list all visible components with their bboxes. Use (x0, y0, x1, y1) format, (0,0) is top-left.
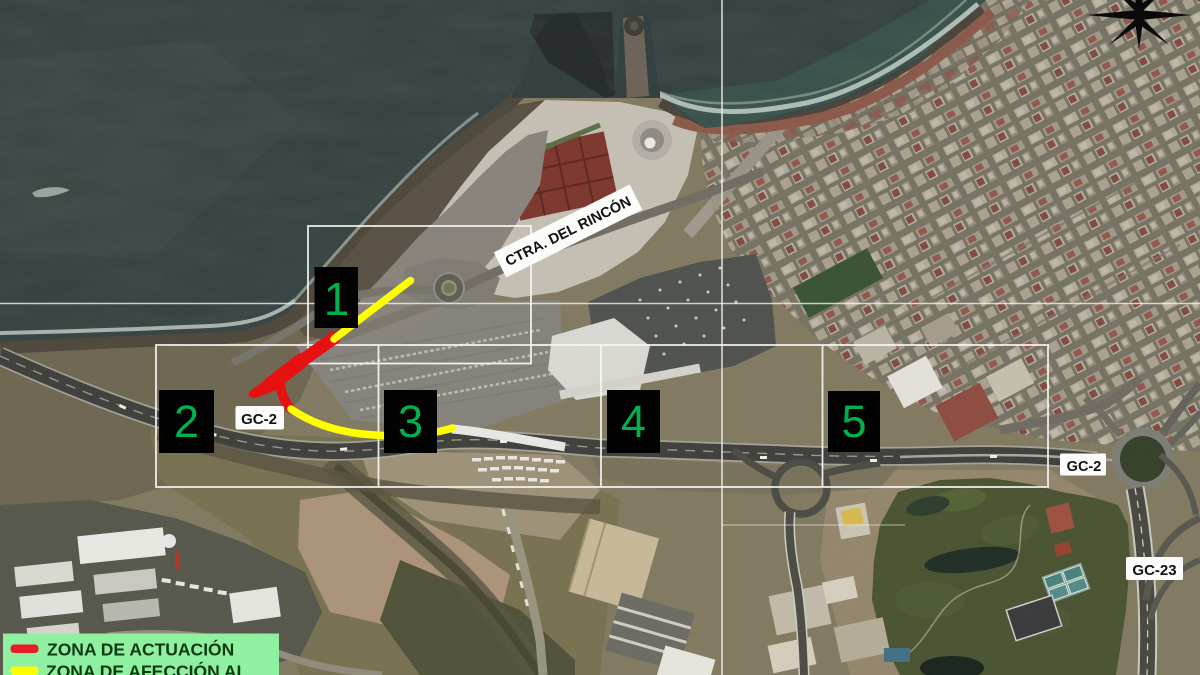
svg-text:3: 3 (398, 396, 423, 447)
svg-text:ZONA DE AFECCIÓN AL: ZONA DE AFECCIÓN AL (46, 661, 248, 675)
svg-text:5: 5 (841, 396, 866, 447)
svg-text:4: 4 (621, 396, 646, 447)
svg-text:1: 1 (324, 273, 350, 325)
svg-text:GC-2: GC-2 (1067, 459, 1102, 475)
svg-text:GC-2: GC-2 (241, 411, 277, 428)
svg-text:GC-23: GC-23 (1132, 562, 1176, 579)
svg-text:ZONA DE ACTUACIÓN: ZONA DE ACTUACIÓN (47, 639, 234, 660)
svg-text:2: 2 (174, 396, 199, 447)
